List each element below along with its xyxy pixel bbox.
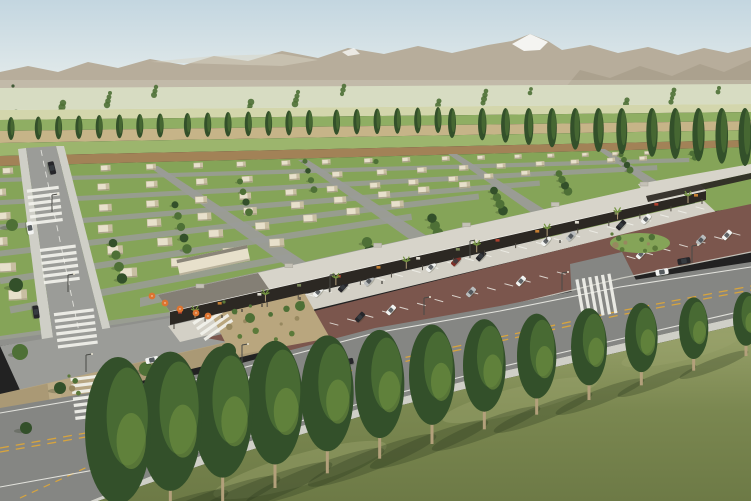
poplar-highlight bbox=[417, 108, 421, 128]
rooftop-unit bbox=[285, 264, 293, 268]
house bbox=[334, 196, 346, 203]
house bbox=[147, 219, 161, 227]
poplar-highlight bbox=[744, 110, 751, 155]
house bbox=[459, 165, 468, 171]
lawn-tree bbox=[237, 178, 243, 184]
poplar-highlight bbox=[397, 109, 401, 129]
scene-canvas bbox=[0, 0, 751, 501]
house bbox=[571, 160, 579, 165]
farm-tree bbox=[716, 90, 721, 95]
shrub bbox=[69, 385, 75, 391]
farm-tree bbox=[484, 89, 489, 94]
farm-tree bbox=[248, 99, 255, 106]
house bbox=[237, 162, 246, 168]
shrub bbox=[274, 337, 278, 341]
house bbox=[378, 191, 390, 198]
rooftop-unit bbox=[374, 243, 382, 247]
poplar-highlight bbox=[10, 118, 14, 136]
lawn-tree bbox=[373, 159, 378, 164]
person bbox=[241, 309, 242, 312]
poplar-highlight bbox=[598, 110, 603, 144]
farm-tree bbox=[529, 87, 533, 91]
house bbox=[146, 200, 158, 207]
lawn-tree bbox=[624, 162, 630, 168]
house bbox=[391, 201, 403, 208]
foreground-tree-light bbox=[693, 321, 706, 344]
streetlight-head bbox=[567, 271, 569, 273]
storefront-sign bbox=[535, 230, 539, 233]
median-tree bbox=[6, 219, 18, 231]
umbrella-top bbox=[179, 308, 180, 309]
house bbox=[198, 213, 212, 221]
house bbox=[536, 161, 544, 166]
car-glass bbox=[659, 269, 665, 274]
lawn-tree bbox=[556, 170, 563, 177]
shrub bbox=[612, 242, 618, 248]
house bbox=[303, 215, 316, 223]
house bbox=[98, 224, 112, 233]
poplar-highlight bbox=[336, 110, 340, 129]
shrub bbox=[652, 245, 658, 251]
poplar-highlight bbox=[574, 109, 579, 141]
person bbox=[381, 281, 382, 284]
foreground-tree-light bbox=[536, 346, 553, 378]
farm-tree bbox=[295, 94, 300, 99]
poplar-highlight bbox=[621, 110, 626, 146]
umbrella-top bbox=[207, 315, 208, 316]
lawn-tree bbox=[242, 198, 249, 205]
streetlight-head bbox=[57, 193, 59, 195]
shrub bbox=[623, 241, 627, 245]
median-tree bbox=[20, 422, 32, 434]
house bbox=[547, 154, 554, 158]
foreground-tree-light bbox=[221, 396, 247, 446]
streetlight-head bbox=[247, 343, 249, 345]
house bbox=[289, 174, 299, 180]
house-roof-shade bbox=[11, 263, 16, 272]
house bbox=[332, 171, 342, 177]
lawn-tree bbox=[117, 273, 127, 283]
person bbox=[221, 315, 222, 318]
rooftop-unit bbox=[551, 202, 559, 206]
house-roof-shade bbox=[21, 290, 27, 300]
person bbox=[299, 297, 300, 300]
poplar-highlight bbox=[697, 110, 703, 151]
poplar-highlight bbox=[160, 114, 164, 133]
house bbox=[194, 163, 203, 169]
shrub bbox=[649, 234, 655, 240]
median-tree bbox=[12, 344, 28, 360]
storefront-sign bbox=[694, 194, 698, 197]
house bbox=[322, 159, 330, 164]
storefront-sign bbox=[297, 284, 301, 287]
shrub bbox=[268, 312, 273, 317]
shrub bbox=[289, 331, 295, 337]
house bbox=[101, 165, 111, 171]
poplar-highlight bbox=[451, 109, 455, 132]
shrub bbox=[643, 249, 647, 253]
shrub bbox=[647, 242, 650, 245]
rooftop-unit bbox=[196, 284, 204, 288]
foreground-tree-light bbox=[431, 363, 451, 401]
house bbox=[364, 158, 372, 163]
house bbox=[327, 186, 338, 193]
streetlight-head bbox=[697, 244, 699, 246]
lawn-tree bbox=[177, 223, 185, 231]
house bbox=[521, 171, 530, 176]
house bbox=[418, 187, 429, 194]
median-tree bbox=[54, 382, 66, 394]
umbrella-top bbox=[195, 312, 196, 313]
house bbox=[3, 168, 13, 175]
storefront-sign bbox=[218, 302, 222, 305]
farm-tree bbox=[624, 97, 629, 102]
house bbox=[209, 229, 223, 238]
farm-tree bbox=[154, 85, 158, 89]
streetlight-head bbox=[335, 273, 337, 275]
poplar-highlight bbox=[139, 115, 143, 133]
storefront-sign bbox=[456, 248, 460, 251]
lawn-tree bbox=[172, 201, 179, 208]
house bbox=[291, 202, 304, 210]
house bbox=[195, 196, 207, 203]
poplar-highlight bbox=[482, 109, 486, 134]
lawn-tree bbox=[180, 234, 189, 243]
house bbox=[402, 157, 410, 162]
foreground-tree-light bbox=[117, 413, 146, 469]
lawn-tree bbox=[305, 168, 311, 174]
farm-tree bbox=[672, 88, 677, 93]
house bbox=[448, 176, 457, 182]
house-roof-shade bbox=[132, 268, 137, 277]
foreground-tree-light bbox=[641, 329, 656, 355]
shrub bbox=[249, 304, 252, 307]
lawn-tree bbox=[308, 177, 314, 183]
farm-tree bbox=[11, 84, 14, 87]
poplar-highlight bbox=[356, 110, 360, 130]
storefront-sign bbox=[416, 257, 420, 260]
shrub bbox=[253, 328, 259, 334]
storefront-sign bbox=[575, 221, 579, 224]
shrub bbox=[280, 322, 283, 325]
umbrella-top bbox=[151, 295, 152, 296]
person bbox=[559, 240, 560, 243]
shrub bbox=[616, 236, 622, 242]
farm-tree bbox=[296, 90, 300, 94]
aerial-rendering bbox=[0, 0, 751, 501]
house bbox=[146, 181, 157, 188]
lawn-tree bbox=[362, 237, 372, 247]
house bbox=[99, 204, 112, 212]
lawn-tree bbox=[311, 186, 318, 193]
shrub bbox=[639, 237, 644, 242]
farm-tree bbox=[668, 99, 673, 104]
poplar-highlight bbox=[377, 109, 381, 129]
poplar-highlight bbox=[119, 115, 123, 133]
house bbox=[484, 173, 493, 179]
person bbox=[261, 304, 262, 307]
foreground-tree-light bbox=[483, 354, 502, 389]
poplar-highlight bbox=[651, 110, 657, 147]
lawn-tree bbox=[174, 212, 182, 220]
farm-tree bbox=[107, 95, 112, 100]
house bbox=[370, 182, 380, 188]
shrub bbox=[620, 247, 625, 252]
car-glass bbox=[27, 225, 32, 231]
streetlight-head bbox=[429, 296, 431, 298]
shrub bbox=[295, 316, 300, 321]
house bbox=[281, 160, 290, 165]
farm-tree bbox=[342, 84, 347, 89]
farm-tree bbox=[528, 91, 533, 96]
shrub bbox=[76, 391, 81, 396]
foreground-tree-light bbox=[588, 338, 604, 367]
lawn-tree bbox=[114, 262, 124, 272]
foreground-tree-light bbox=[274, 388, 299, 435]
house bbox=[347, 208, 360, 216]
house bbox=[582, 153, 588, 157]
farm-tree bbox=[60, 100, 66, 106]
median-tree bbox=[9, 278, 23, 292]
streetlight-head bbox=[475, 239, 477, 241]
poplar-highlight bbox=[207, 113, 211, 132]
poplar-highlight bbox=[437, 108, 441, 128]
shrub bbox=[67, 374, 70, 377]
lawn-tree bbox=[182, 244, 191, 253]
shrub bbox=[237, 334, 242, 339]
island-tree bbox=[245, 313, 255, 323]
poplar-highlight bbox=[309, 111, 313, 130]
poplar-highlight bbox=[38, 117, 42, 135]
house bbox=[157, 238, 172, 247]
house bbox=[242, 176, 253, 183]
poplar-highlight bbox=[99, 116, 103, 134]
lawn-tree bbox=[490, 187, 498, 195]
house bbox=[459, 182, 470, 188]
shrub bbox=[232, 309, 238, 315]
storefront-sign bbox=[257, 293, 261, 296]
rooftop-unit bbox=[640, 182, 648, 186]
lawn-tree bbox=[109, 239, 118, 248]
house bbox=[146, 164, 155, 170]
lawn-tree bbox=[621, 157, 627, 163]
house bbox=[0, 212, 10, 220]
poplar-highlight bbox=[187, 114, 191, 133]
rooftop-unit bbox=[462, 223, 470, 227]
house bbox=[408, 179, 418, 185]
lawn-tree bbox=[303, 159, 308, 164]
car-glass bbox=[33, 309, 38, 315]
house bbox=[639, 156, 646, 161]
house bbox=[417, 167, 426, 173]
storefront-sign bbox=[654, 203, 658, 206]
farm-tree bbox=[717, 86, 721, 90]
farm-tree bbox=[108, 91, 112, 95]
shrub bbox=[222, 300, 225, 303]
house bbox=[98, 183, 110, 190]
foreground-tree-light bbox=[379, 371, 401, 412]
shrub bbox=[72, 378, 78, 384]
poplar-highlight bbox=[528, 109, 533, 137]
lawn-tree bbox=[245, 208, 253, 216]
shrub bbox=[226, 324, 232, 330]
shrub bbox=[283, 306, 289, 312]
lawn-tree bbox=[427, 214, 436, 223]
poplar-highlight bbox=[288, 111, 292, 130]
house bbox=[0, 189, 6, 197]
house bbox=[255, 222, 269, 230]
foreground-tree-light bbox=[326, 379, 349, 423]
car-glass bbox=[681, 258, 687, 263]
house bbox=[0, 237, 7, 246]
storefront-sign bbox=[496, 239, 500, 242]
poplar-highlight bbox=[78, 116, 82, 134]
house bbox=[269, 239, 284, 248]
poplar-highlight bbox=[268, 112, 272, 131]
foreground-tree-light bbox=[169, 405, 197, 458]
poplar-highlight bbox=[551, 109, 556, 139]
umbrella-top bbox=[164, 302, 165, 303]
house bbox=[0, 263, 16, 273]
house bbox=[607, 158, 615, 163]
poplar-highlight bbox=[248, 112, 252, 131]
farm-tree bbox=[437, 99, 442, 104]
lawn-tree bbox=[240, 189, 247, 196]
storefront-sign bbox=[376, 266, 380, 269]
house-roof-shade bbox=[3, 237, 8, 246]
poplar-highlight bbox=[227, 113, 231, 132]
poplar-highlight bbox=[505, 109, 509, 136]
poplar-highlight bbox=[674, 110, 680, 149]
streetlight-head bbox=[91, 353, 93, 355]
house bbox=[515, 154, 522, 158]
house bbox=[477, 155, 484, 160]
house bbox=[497, 163, 506, 168]
shrub bbox=[610, 232, 613, 235]
house bbox=[442, 156, 450, 161]
farm-tree bbox=[153, 89, 158, 94]
house bbox=[196, 178, 207, 185]
island-tree bbox=[295, 301, 305, 311]
house bbox=[285, 189, 296, 196]
poplar-highlight bbox=[58, 117, 62, 135]
streetlight-head bbox=[73, 273, 75, 275]
house bbox=[377, 169, 387, 175]
poplar-highlight bbox=[721, 110, 727, 153]
lawn-tree bbox=[111, 250, 120, 259]
